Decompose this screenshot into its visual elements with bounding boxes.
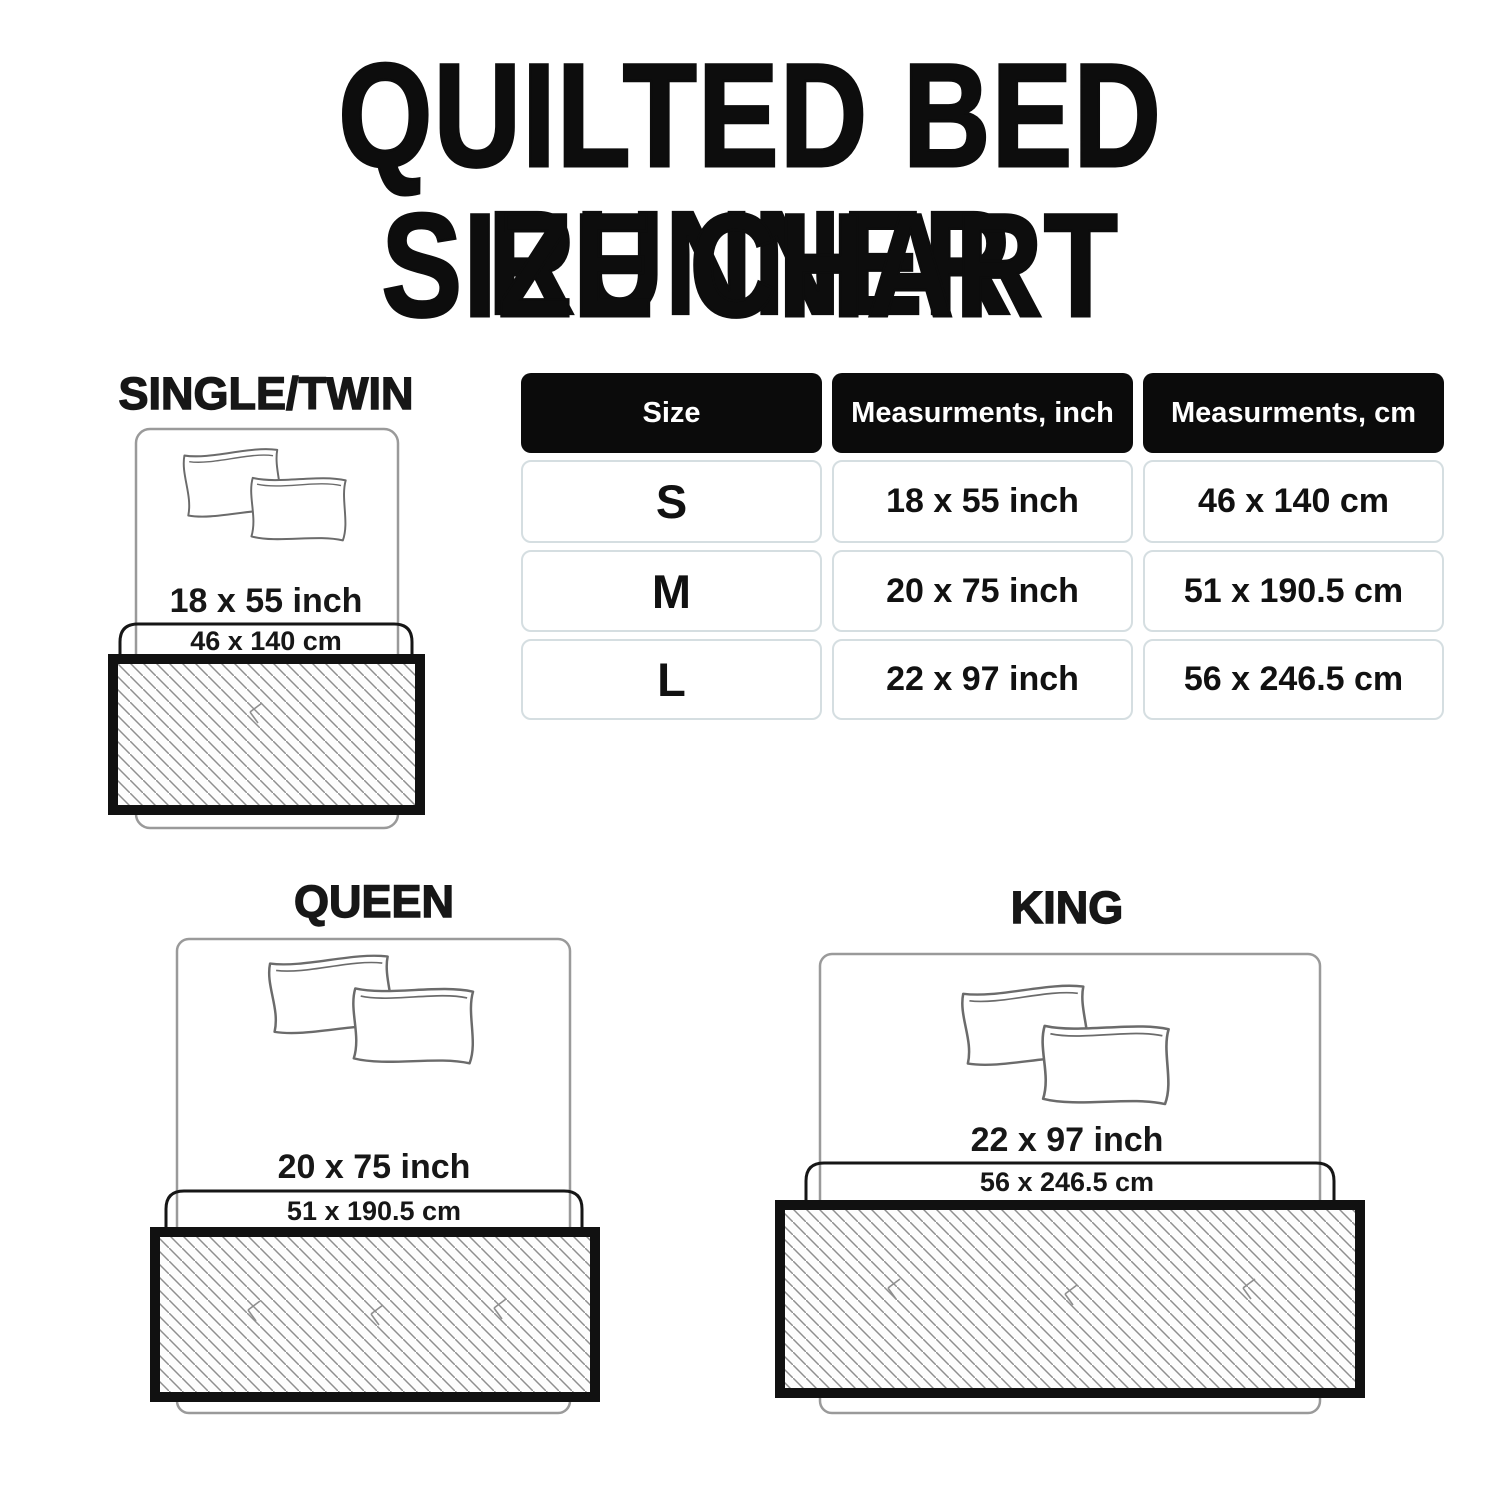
table-cell-cm-l: 56 x 246.5 cm — [1143, 639, 1444, 720]
king-inch-label: 22 x 97 inch — [971, 1121, 1164, 1160]
table-header-inch: Measurments, inch — [832, 373, 1133, 453]
size-chart-page: QUILTED BED RUNNER SIZE CHART — [0, 0, 1500, 1500]
queen-inch-label: 20 x 75 inch — [278, 1148, 471, 1187]
table-cell-inch-s: 18 x 55 inch — [832, 460, 1133, 543]
table-cell-inch-m: 20 x 75 inch — [832, 550, 1133, 632]
diagram-title-king: KING — [1011, 882, 1124, 934]
table-header-size: Size — [521, 373, 822, 453]
table-cell-cm-m: 51 x 190.5 cm — [1143, 550, 1444, 632]
table-cell-size-l: L — [521, 639, 822, 720]
table-cell-size-m: M — [521, 550, 822, 632]
pillow-icon — [1040, 1023, 1170, 1106]
pillow-icon — [351, 986, 474, 1065]
table-header-cm: Measurments, cm — [1143, 373, 1444, 453]
king-runner-graphic — [780, 1205, 1360, 1393]
pillow-icon — [249, 476, 347, 542]
single-twin-runner-graphic — [113, 659, 420, 810]
queen-runner-graphic — [155, 1232, 595, 1397]
size-table: Size Measurments, inch Measurments, cm S… — [521, 373, 1444, 720]
table-cell-cm-s: 46 x 140 cm — [1143, 460, 1444, 543]
diagram-title-queen: QUEEN — [294, 876, 454, 928]
table-cell-inch-l: 22 x 97 inch — [832, 639, 1133, 720]
bed-diagrams-canvas — [0, 0, 1500, 1500]
diagram-title-single-twin: SINGLE/TWIN — [119, 368, 414, 420]
queen-cm-label: 51 x 190.5 cm — [287, 1196, 461, 1227]
table-cell-size-s: S — [521, 460, 822, 543]
king-cm-label: 56 x 246.5 cm — [980, 1167, 1154, 1198]
single-twin-cm-label: 46 x 140 cm — [190, 626, 342, 657]
single-twin-inch-label: 18 x 55 inch — [170, 582, 363, 621]
